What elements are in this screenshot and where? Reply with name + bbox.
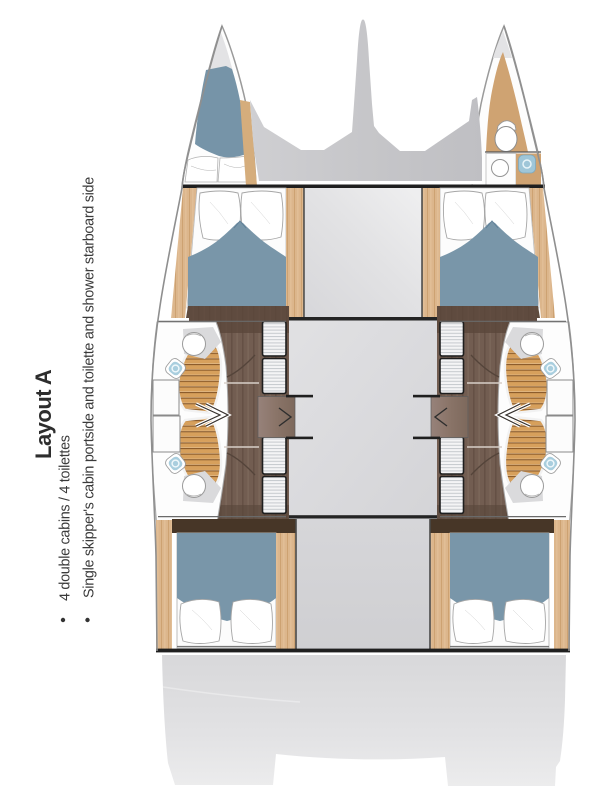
svg-text:4 double cabins / 4 toilettes: 4 double cabins / 4 toilettes [58, 435, 74, 601]
svg-text:Single skipper's cabin portsid: Single skipper's cabin portside and toil… [82, 177, 98, 598]
svg-text:Layout A: Layout A [31, 369, 56, 459]
